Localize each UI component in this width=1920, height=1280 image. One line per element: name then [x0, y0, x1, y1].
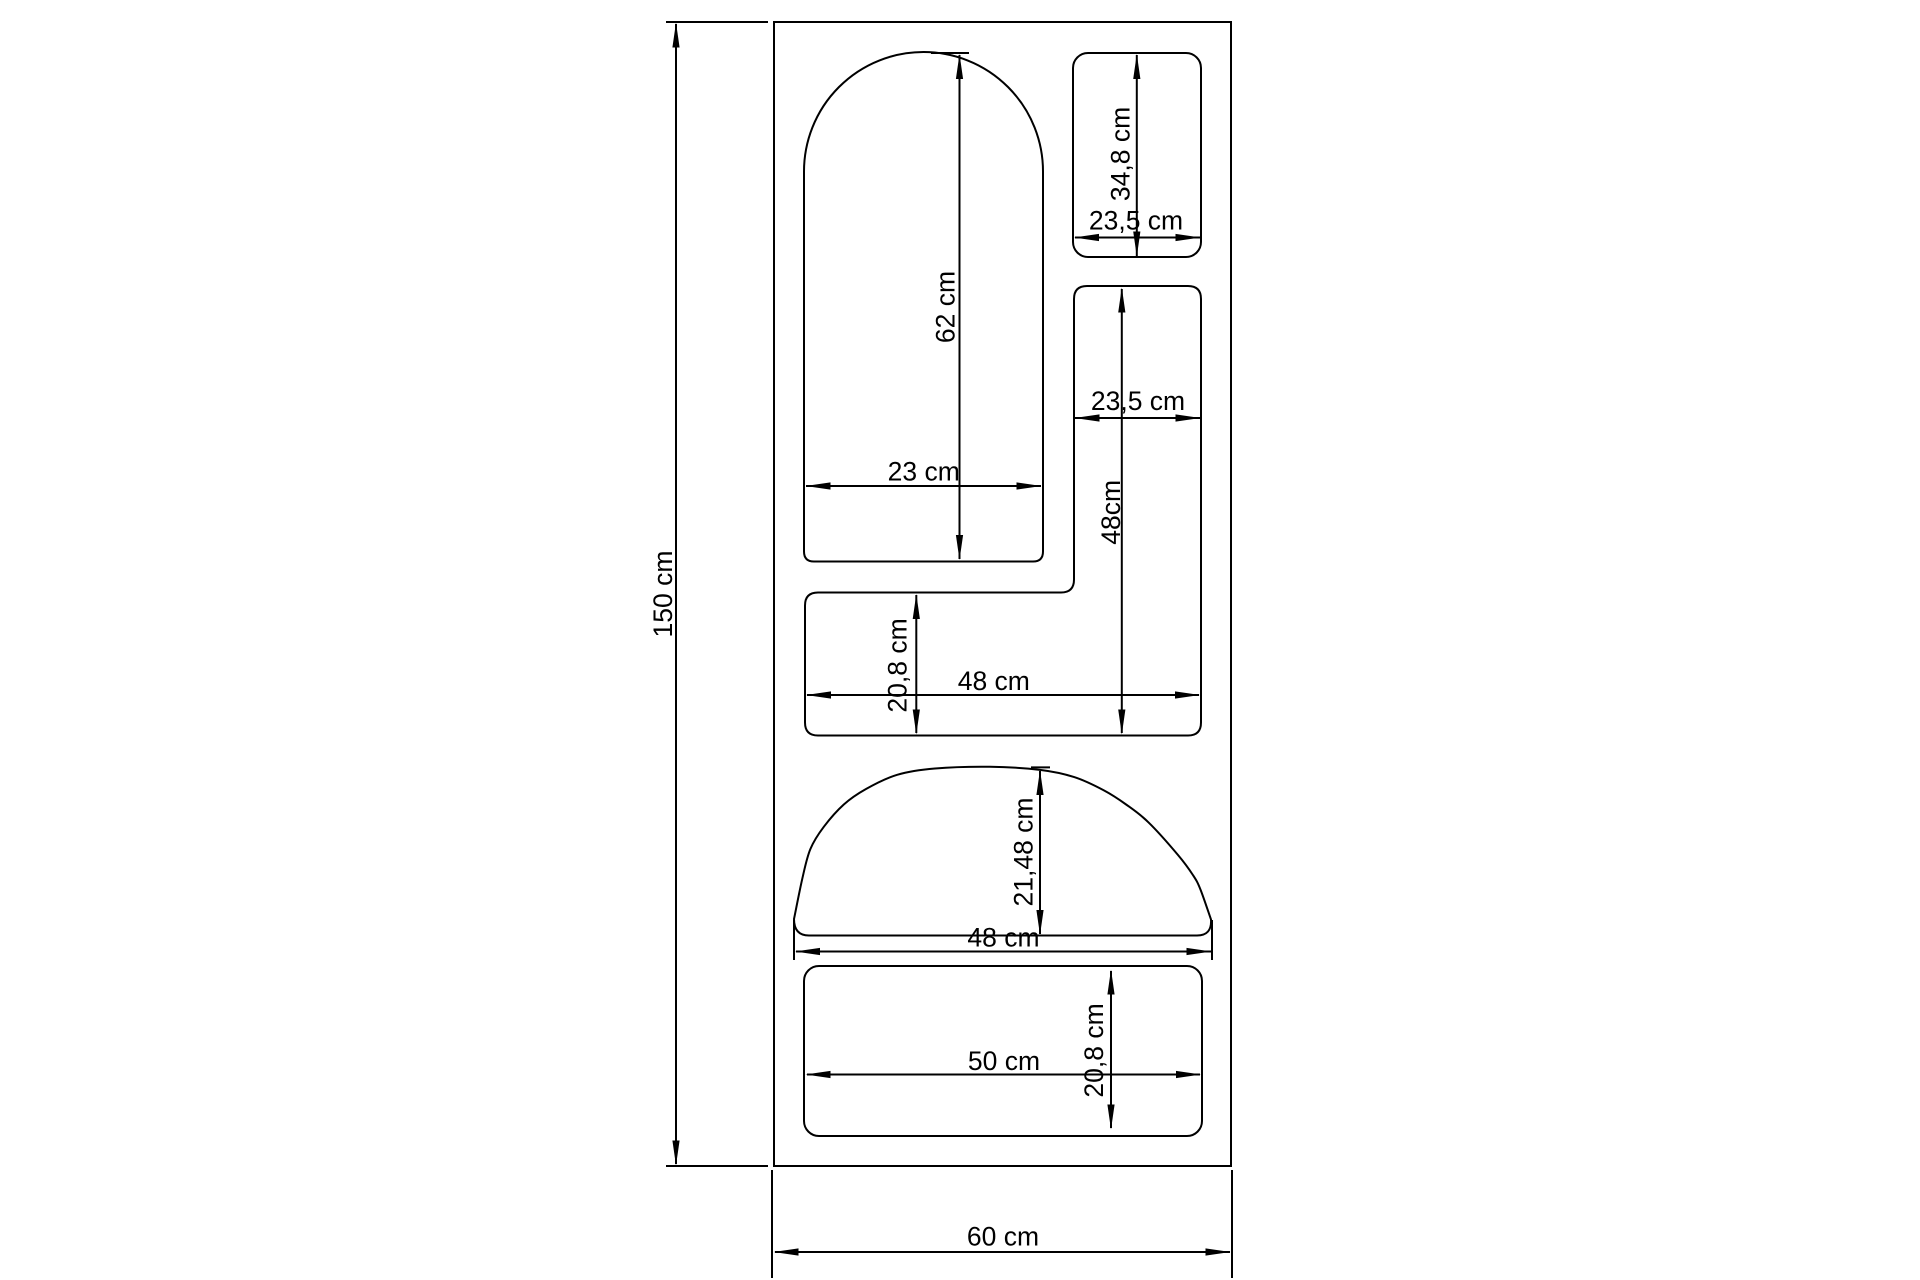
- svg-text:150 cm: 150 cm: [648, 551, 678, 638]
- svg-text:34,8 cm: 34,8 cm: [1106, 107, 1136, 201]
- svg-text:62 cm: 62 cm: [931, 271, 961, 343]
- svg-text:21,48 cm: 21,48 cm: [1009, 797, 1039, 906]
- svg-text:23 cm: 23 cm: [888, 457, 960, 487]
- svg-text:20,8 cm: 20,8 cm: [1079, 1003, 1109, 1097]
- svg-text:48cm: 48cm: [1096, 480, 1126, 545]
- svg-text:48 cm: 48 cm: [958, 666, 1030, 696]
- svg-text:20,8 cm: 20,8 cm: [883, 618, 913, 712]
- svg-text:23,5 cm: 23,5 cm: [1089, 206, 1183, 236]
- svg-text:23,5 cm: 23,5 cm: [1091, 386, 1185, 416]
- svg-text:48 cm: 48 cm: [967, 922, 1039, 952]
- svg-text:60 cm: 60 cm: [967, 1222, 1039, 1252]
- svg-text:50 cm: 50 cm: [968, 1046, 1040, 1076]
